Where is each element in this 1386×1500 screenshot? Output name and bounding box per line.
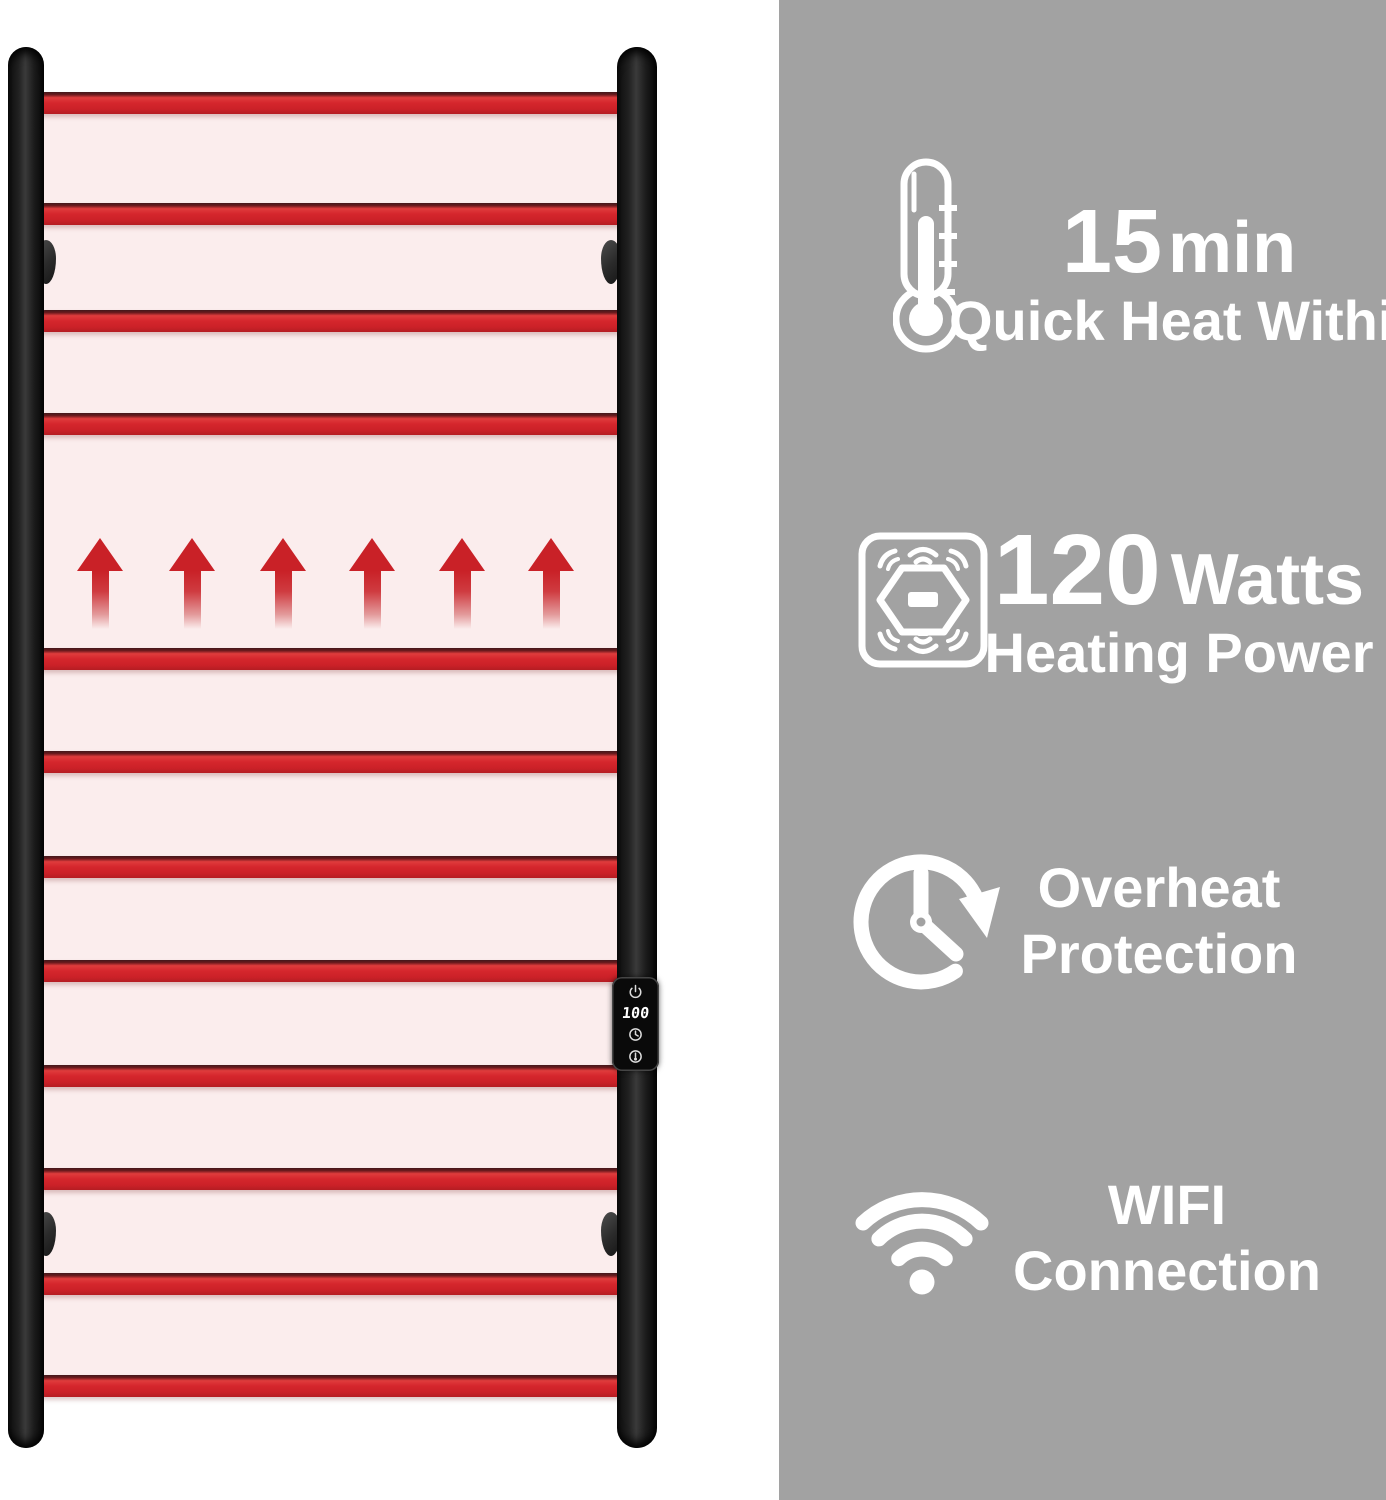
left-post: [8, 47, 44, 1448]
feature-line: Connection: [937, 1238, 1386, 1304]
feature-quick-heat: 15 min Quick Heat Within: [949, 202, 1386, 354]
control-panel: 100: [612, 977, 659, 1071]
arrow-head: [528, 538, 574, 571]
feature-line: Protection: [929, 921, 1386, 987]
heat-arrow-icon: [349, 538, 395, 630]
clock-icon: [628, 1027, 643, 1042]
right-post: [617, 47, 657, 1448]
arrow-shaft: [275, 571, 292, 629]
feature-value: 120: [994, 530, 1161, 610]
feature-unit: min: [1168, 208, 1296, 288]
heated-rail: [36, 1273, 626, 1295]
arrow-shaft: [543, 571, 560, 629]
heat-arrow-icon: [439, 538, 485, 630]
feature-caption: Heating Power: [949, 620, 1386, 686]
feature-heating-power: 120 Watts Heating Power: [949, 530, 1386, 686]
product-infographic: 100 15 min Qu: [0, 0, 1386, 1500]
arrow-head: [77, 538, 123, 571]
heat-arrow-icon: [260, 538, 306, 630]
heat-arrow-icon: [77, 538, 123, 630]
arrow-head: [439, 538, 485, 571]
feature-overheat-protection: Overheat Protection: [929, 855, 1386, 987]
arrow-shaft: [92, 571, 109, 629]
feature-value: 15: [1062, 202, 1162, 282]
heated-rail: [36, 1375, 626, 1397]
heat-arrow-icon: [169, 538, 215, 630]
feature-line: Overheat: [929, 855, 1386, 921]
heated-rail: [36, 1065, 626, 1087]
towel-warmer-illustration: 100: [0, 0, 779, 1500]
feature-wifi-connection: WIFI Connection: [937, 1172, 1386, 1304]
arrow-head: [169, 538, 215, 571]
arrow-head: [260, 538, 306, 571]
power-icon: [628, 984, 643, 999]
feature-panel: 15 min Quick Heat Within 1: [779, 0, 1386, 1500]
heated-rail: [36, 648, 626, 670]
heated-rail: [36, 92, 626, 114]
arrow-shaft: [364, 571, 381, 629]
arrow-shaft: [184, 571, 201, 629]
heated-rail: [36, 413, 626, 435]
feature-line: WIFI: [937, 1172, 1386, 1238]
heated-rail: [36, 310, 626, 332]
heated-rail: [36, 856, 626, 878]
heated-rail: [36, 960, 626, 982]
temperature-icon: [628, 1049, 643, 1064]
heat-arrow-icon: [528, 538, 574, 630]
heated-rail: [36, 751, 626, 773]
heat-glow-panel: [44, 92, 617, 1397]
heated-rail: [36, 203, 626, 225]
timer-display: 100: [621, 1006, 650, 1021]
heated-rail: [36, 1168, 626, 1190]
feature-caption: Quick Heat Within: [949, 288, 1386, 354]
arrow-head: [349, 538, 395, 571]
arrow-shaft: [454, 571, 471, 629]
feature-unit: Watts: [1171, 540, 1364, 620]
